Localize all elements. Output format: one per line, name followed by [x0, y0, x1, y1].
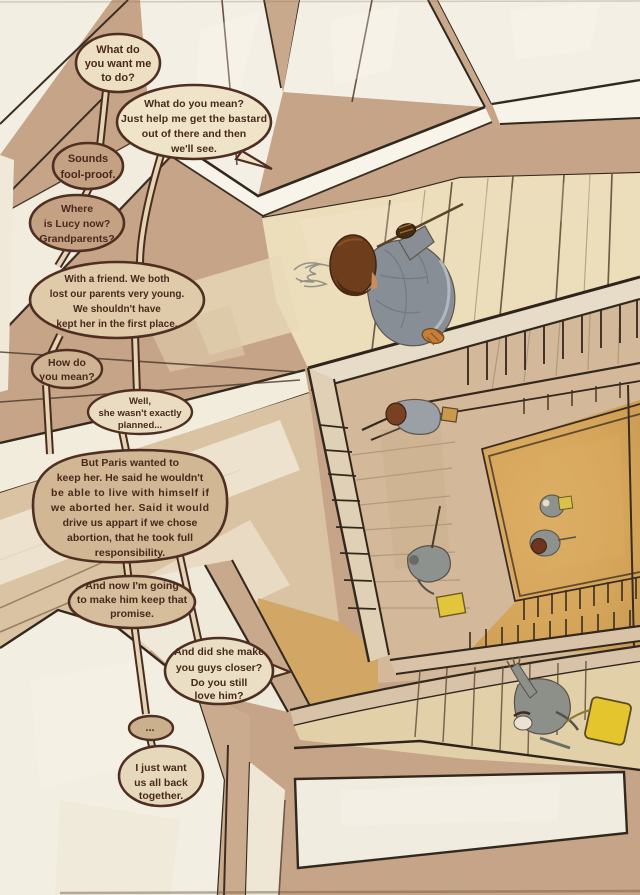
svg-text:together.: together. — [139, 790, 183, 802]
svg-text:planned...: planned... — [118, 420, 162, 431]
svg-text:Well,: Well, — [129, 396, 151, 407]
svg-text:lost our parents very young.: lost our parents very young. — [50, 289, 185, 300]
svg-text:Grandparents?: Grandparents? — [39, 233, 114, 245]
svg-text:we'll see.: we'll see. — [170, 143, 217, 155]
svg-text:How do: How do — [48, 357, 86, 369]
svg-text:kept her in the first place.: kept her in the first place. — [56, 319, 177, 330]
svg-text:we aborted her. Said it would: we aborted her. Said it would — [50, 502, 209, 514]
svg-text:fool-proof.: fool-proof. — [61, 169, 116, 181]
svg-text:drive us appart if we chose: drive us appart if we chose — [63, 517, 198, 529]
svg-text:Just help me get the bastard: Just help me get the bastard — [121, 113, 267, 125]
svg-text:love him?: love him? — [194, 690, 243, 702]
svg-text:be able to live with himself i: be able to live with himself if — [51, 487, 210, 499]
svg-text:With a friend. We both: With a friend. We both — [64, 274, 169, 285]
svg-text:I just want: I just want — [135, 762, 187, 774]
svg-text:We shouldn't have: We shouldn't have — [73, 304, 161, 315]
svg-text:keep her. He said he wouldn't: keep her. He said he wouldn't — [57, 472, 204, 484]
svg-text:is Lucy now?: is Lucy now? — [44, 218, 111, 230]
svg-text:What do you mean?: What do you mean? — [144, 98, 244, 110]
svg-text:responsibility.: responsibility. — [95, 547, 165, 559]
svg-text:Sounds: Sounds — [68, 153, 108, 165]
svg-text:Do you still: Do you still — [191, 677, 248, 689]
svg-text:promise.: promise. — [110, 608, 154, 620]
svg-text:you mean?: you mean? — [39, 371, 94, 383]
svg-text:And now I'm going: And now I'm going — [85, 580, 178, 592]
svg-text:abortion, that he took full: abortion, that he took full — [67, 532, 193, 544]
svg-text:you guys closer?: you guys closer? — [176, 662, 262, 674]
svg-text:us all back: us all back — [134, 777, 188, 789]
svg-text:What do: What do — [96, 44, 140, 56]
svg-text:And did she make: And did she make — [174, 646, 264, 658]
svg-text:Where: Where — [61, 203, 93, 215]
svg-text:to do?: to do? — [101, 72, 135, 84]
svg-text:to make him keep that: to make him keep that — [77, 594, 188, 606]
svg-text:...: ... — [145, 722, 154, 734]
svg-text:But Paris wanted to: But Paris wanted to — [81, 457, 179, 469]
svg-text:out of there and then: out of there and then — [142, 128, 246, 140]
svg-text:you want me: you want me — [85, 58, 152, 70]
svg-text:she wasn't exactly: she wasn't exactly — [98, 408, 182, 419]
